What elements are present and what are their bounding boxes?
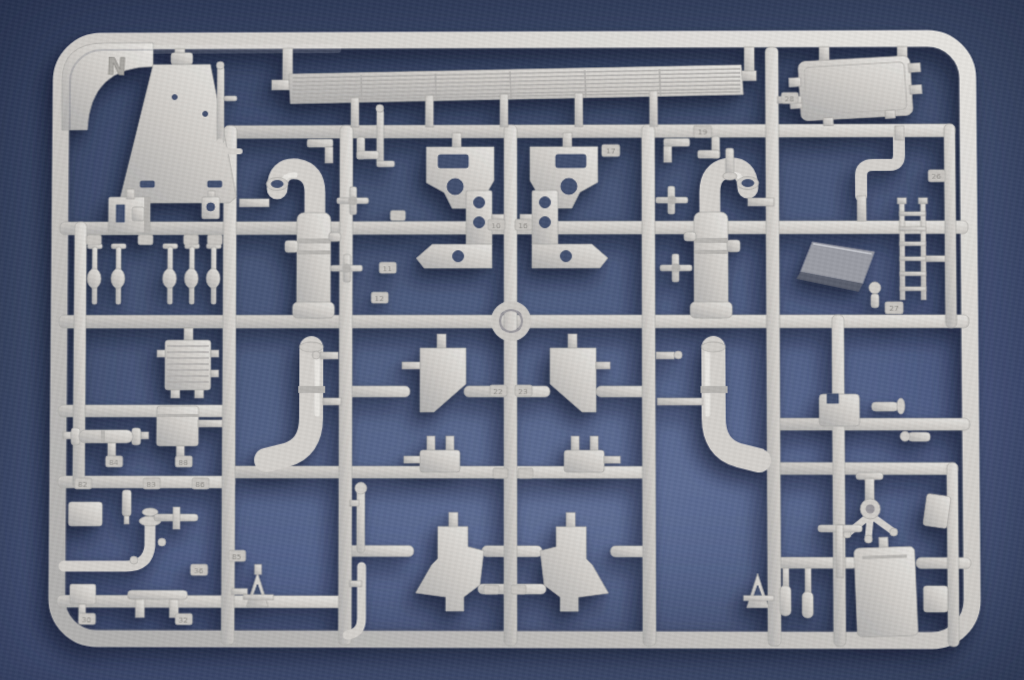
part-l-fittings-top — [307, 136, 737, 181]
svg-text:30: 30 — [82, 615, 92, 624]
svg-text:36: 36 — [194, 566, 204, 575]
svg-text:86: 86 — [195, 480, 205, 489]
part-number-tag: 32 — [175, 614, 192, 625]
part-z-pipe — [857, 126, 905, 221]
sprue-letter: N — [106, 52, 127, 80]
part-trunk-pipe-left — [266, 342, 341, 460]
part-slatted-deck-plank — [272, 65, 757, 128]
part-number-tag: 19 — [694, 125, 712, 137]
part-number-tag: 85 — [229, 550, 246, 561]
svg-text:12: 12 — [375, 294, 385, 303]
svg-text:16: 16 — [518, 221, 528, 230]
part-flag-side-fittings — [312, 351, 682, 359]
svg-text:32: 32 — [179, 616, 189, 625]
part-small-cylinders — [780, 568, 814, 618]
part-tripod-mount — [843, 473, 898, 544]
part-base-plate — [853, 536, 918, 637]
part-number-tag: 10 — [488, 219, 505, 230]
svg-text:22: 22 — [493, 387, 503, 396]
part-vent-funnel-left — [239, 169, 341, 318]
part-pennant-plate-right — [550, 334, 610, 412]
part-vent-funnel-right — [684, 168, 775, 318]
part-number-tag: 12 — [371, 292, 388, 303]
part-number-tag: 88 — [175, 456, 192, 467]
part-number-tag: 26 — [928, 170, 945, 182]
part-ladder — [868, 198, 945, 308]
part-number-tag: 28 — [781, 92, 798, 103]
part-number-tag: 27 — [885, 302, 903, 314]
part-number-tag: 82 — [75, 478, 92, 489]
svg-text:27: 27 — [889, 304, 899, 313]
part-pennant-plate-left — [402, 334, 466, 412]
svg-text:83: 83 — [147, 480, 157, 489]
part-number-tag: 17 — [602, 145, 620, 157]
svg-text:17: 17 — [606, 147, 616, 156]
svg-text:19: 19 — [698, 127, 708, 136]
part-number-tag: 22 — [490, 385, 507, 396]
part-roof-panel — [788, 55, 924, 128]
part-boot-bracket-right — [540, 513, 608, 612]
svg-text:84: 84 — [109, 458, 119, 467]
part-angled-plate — [796, 242, 875, 292]
part-radiator-box — [157, 328, 219, 398]
part-number-tag: 16 — [515, 219, 532, 230]
part-boot-bracket-left — [416, 512, 484, 611]
part-number-tag: 83 — [143, 478, 160, 489]
svg-text:11: 11 — [383, 264, 393, 273]
part-number-tag: 84 — [106, 456, 123, 467]
svg-text:85: 85 — [232, 552, 242, 561]
part-trunk-pipe-right — [657, 342, 759, 460]
svg-text:28: 28 — [785, 94, 795, 103]
part-number-tag: 23 — [515, 385, 532, 396]
svg-text:10: 10 — [491, 221, 501, 230]
svg-text:88: 88 — [179, 458, 189, 467]
part-handle-set — [87, 244, 221, 305]
part-number-tag: 30 — [78, 613, 95, 624]
svg-text:82: 82 — [78, 480, 88, 489]
svg-text:23: 23 — [518, 387, 528, 396]
part-number-tag: 86 — [192, 478, 209, 489]
part-small-pipe-and-box — [68, 490, 131, 526]
svg-text:26: 26 — [932, 172, 942, 181]
part-number-tag: 11 — [379, 262, 396, 273]
part-number-tag: 36 — [191, 564, 208, 575]
photo-backdrop: 19 17 10 16 11 12 28 26 27 22 23 84 88 8… — [0, 0, 1024, 680]
model-kit-sprue: 19 17 10 16 11 12 28 26 27 22 23 84 88 8… — [0, 0, 1024, 680]
